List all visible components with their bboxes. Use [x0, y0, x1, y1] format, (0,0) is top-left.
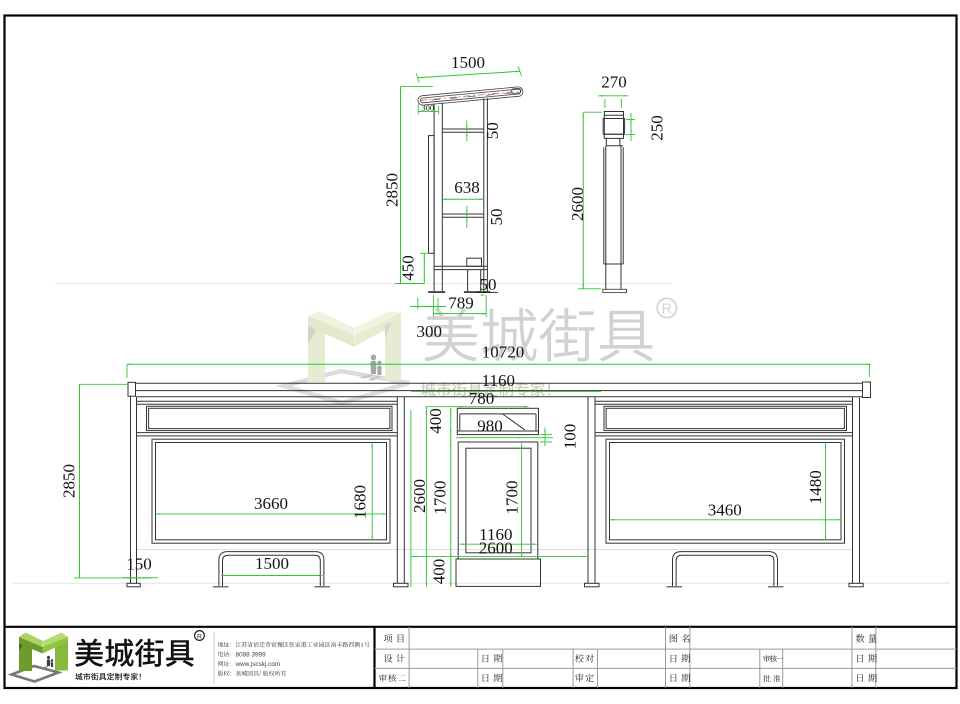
svg-text:300: 300 — [417, 322, 443, 341]
svg-text:270: 270 — [601, 73, 627, 92]
svg-text:50: 50 — [483, 122, 502, 139]
svg-text:/: / — [259, 670, 261, 678]
svg-text:400: 400 — [426, 408, 445, 434]
svg-text:250: 250 — [648, 115, 667, 141]
svg-text:2600: 2600 — [479, 538, 513, 557]
svg-text:3460: 3460 — [708, 501, 742, 520]
svg-text:1480: 1480 — [806, 470, 825, 504]
svg-text:R: R — [662, 301, 672, 317]
svg-text:3660: 3660 — [254, 494, 288, 513]
svg-text:2850: 2850 — [59, 464, 78, 498]
svg-text:www.jscskj.com: www.jscskj.com — [235, 661, 281, 668]
svg-text:100: 100 — [561, 424, 580, 450]
svg-text:2850: 2850 — [383, 173, 402, 207]
svg-text:10720: 10720 — [482, 343, 525, 362]
svg-text:638: 638 — [454, 178, 480, 197]
svg-text:2600: 2600 — [568, 187, 587, 221]
svg-text:50: 50 — [487, 208, 506, 225]
svg-text:R: R — [197, 634, 202, 641]
svg-text:450: 450 — [399, 255, 418, 281]
svg-text:50: 50 — [480, 275, 497, 294]
svg-text:1500: 1500 — [451, 53, 485, 72]
svg-text:2600: 2600 — [410, 479, 429, 513]
svg-text:1: 1 — [361, 642, 364, 649]
svg-text:1160: 1160 — [482, 371, 515, 390]
svg-text:789: 789 — [448, 294, 474, 313]
svg-text:400: 400 — [430, 559, 449, 585]
svg-text:1500: 1500 — [255, 554, 289, 573]
svg-text:150: 150 — [126, 555, 152, 574]
svg-text:980: 980 — [477, 417, 503, 436]
svg-text:1680: 1680 — [350, 485, 369, 519]
svg-text:780: 780 — [469, 389, 495, 408]
svg-text:8088 3999: 8088 3999 — [236, 651, 267, 658]
svg-text:1700: 1700 — [503, 481, 522, 515]
svg-text:1700: 1700 — [431, 481, 450, 515]
